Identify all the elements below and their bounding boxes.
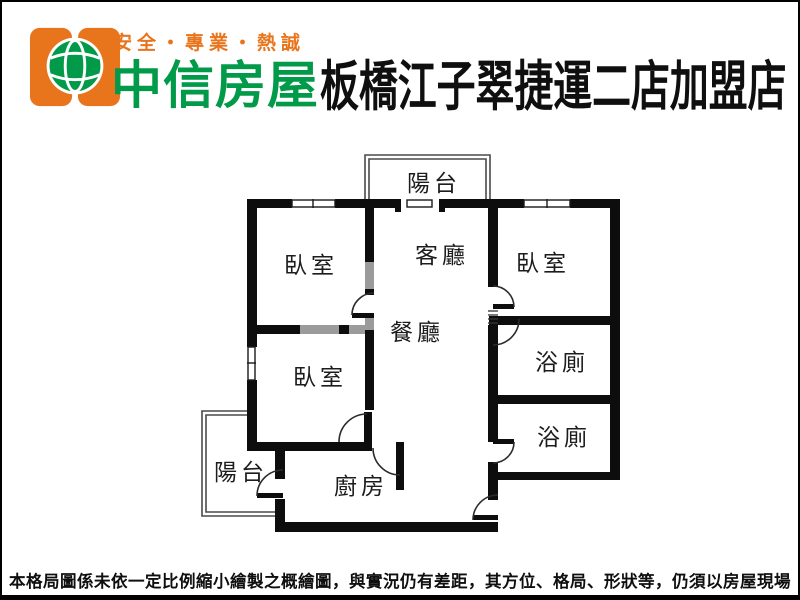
room-label-bath-lower: 浴廁 — [537, 424, 591, 450]
room-label-bedroom-top-right: 臥室 — [516, 250, 570, 276]
windows — [247, 199, 570, 380]
sliding-door-balcony-top — [407, 200, 432, 207]
window-left-wall — [247, 347, 256, 380]
floor-plan: 陽台 臥室 客廳 臥室 餐廳 臥室 浴廁 浴廁 陽台 廚房 — [2, 2, 798, 595]
flyer-frame: 安全・專業・熱誠 中信房屋 板橋江子翠捷運二店加盟店 — [0, 0, 800, 600]
door-arc-bedroom3 — [339, 414, 367, 442]
room-label-kitchen: 廚房 — [334, 473, 388, 499]
door-arc-bedroom1 — [352, 293, 374, 315]
door-arc-bath-lower — [493, 442, 514, 463]
room-label-dining-room: 餐廳 — [390, 319, 444, 345]
window-top-left — [292, 199, 335, 208]
room-label-living-room: 客廳 — [415, 242, 469, 268]
room-label-balcony-top: 陽台 — [407, 170, 461, 196]
door-arcs — [257, 286, 519, 520]
room-label-bath-upper: 浴廁 — [535, 349, 589, 375]
room-label-balcony-bottom: 陽台 — [214, 459, 268, 485]
window-top-right — [524, 199, 570, 208]
door-arc-bedroom2 — [493, 286, 514, 307]
room-label-bedroom-mid-left: 臥室 — [293, 364, 347, 390]
room-label-bedroom-top-left: 臥室 — [284, 252, 338, 278]
disclaimer-text: 本格局圖係未依一定比例縮小繪製之概繪圖，與實況仍有差距，其方位、格局、形狀等，仍… — [2, 568, 798, 600]
door-arc-kitchen — [373, 448, 400, 475]
